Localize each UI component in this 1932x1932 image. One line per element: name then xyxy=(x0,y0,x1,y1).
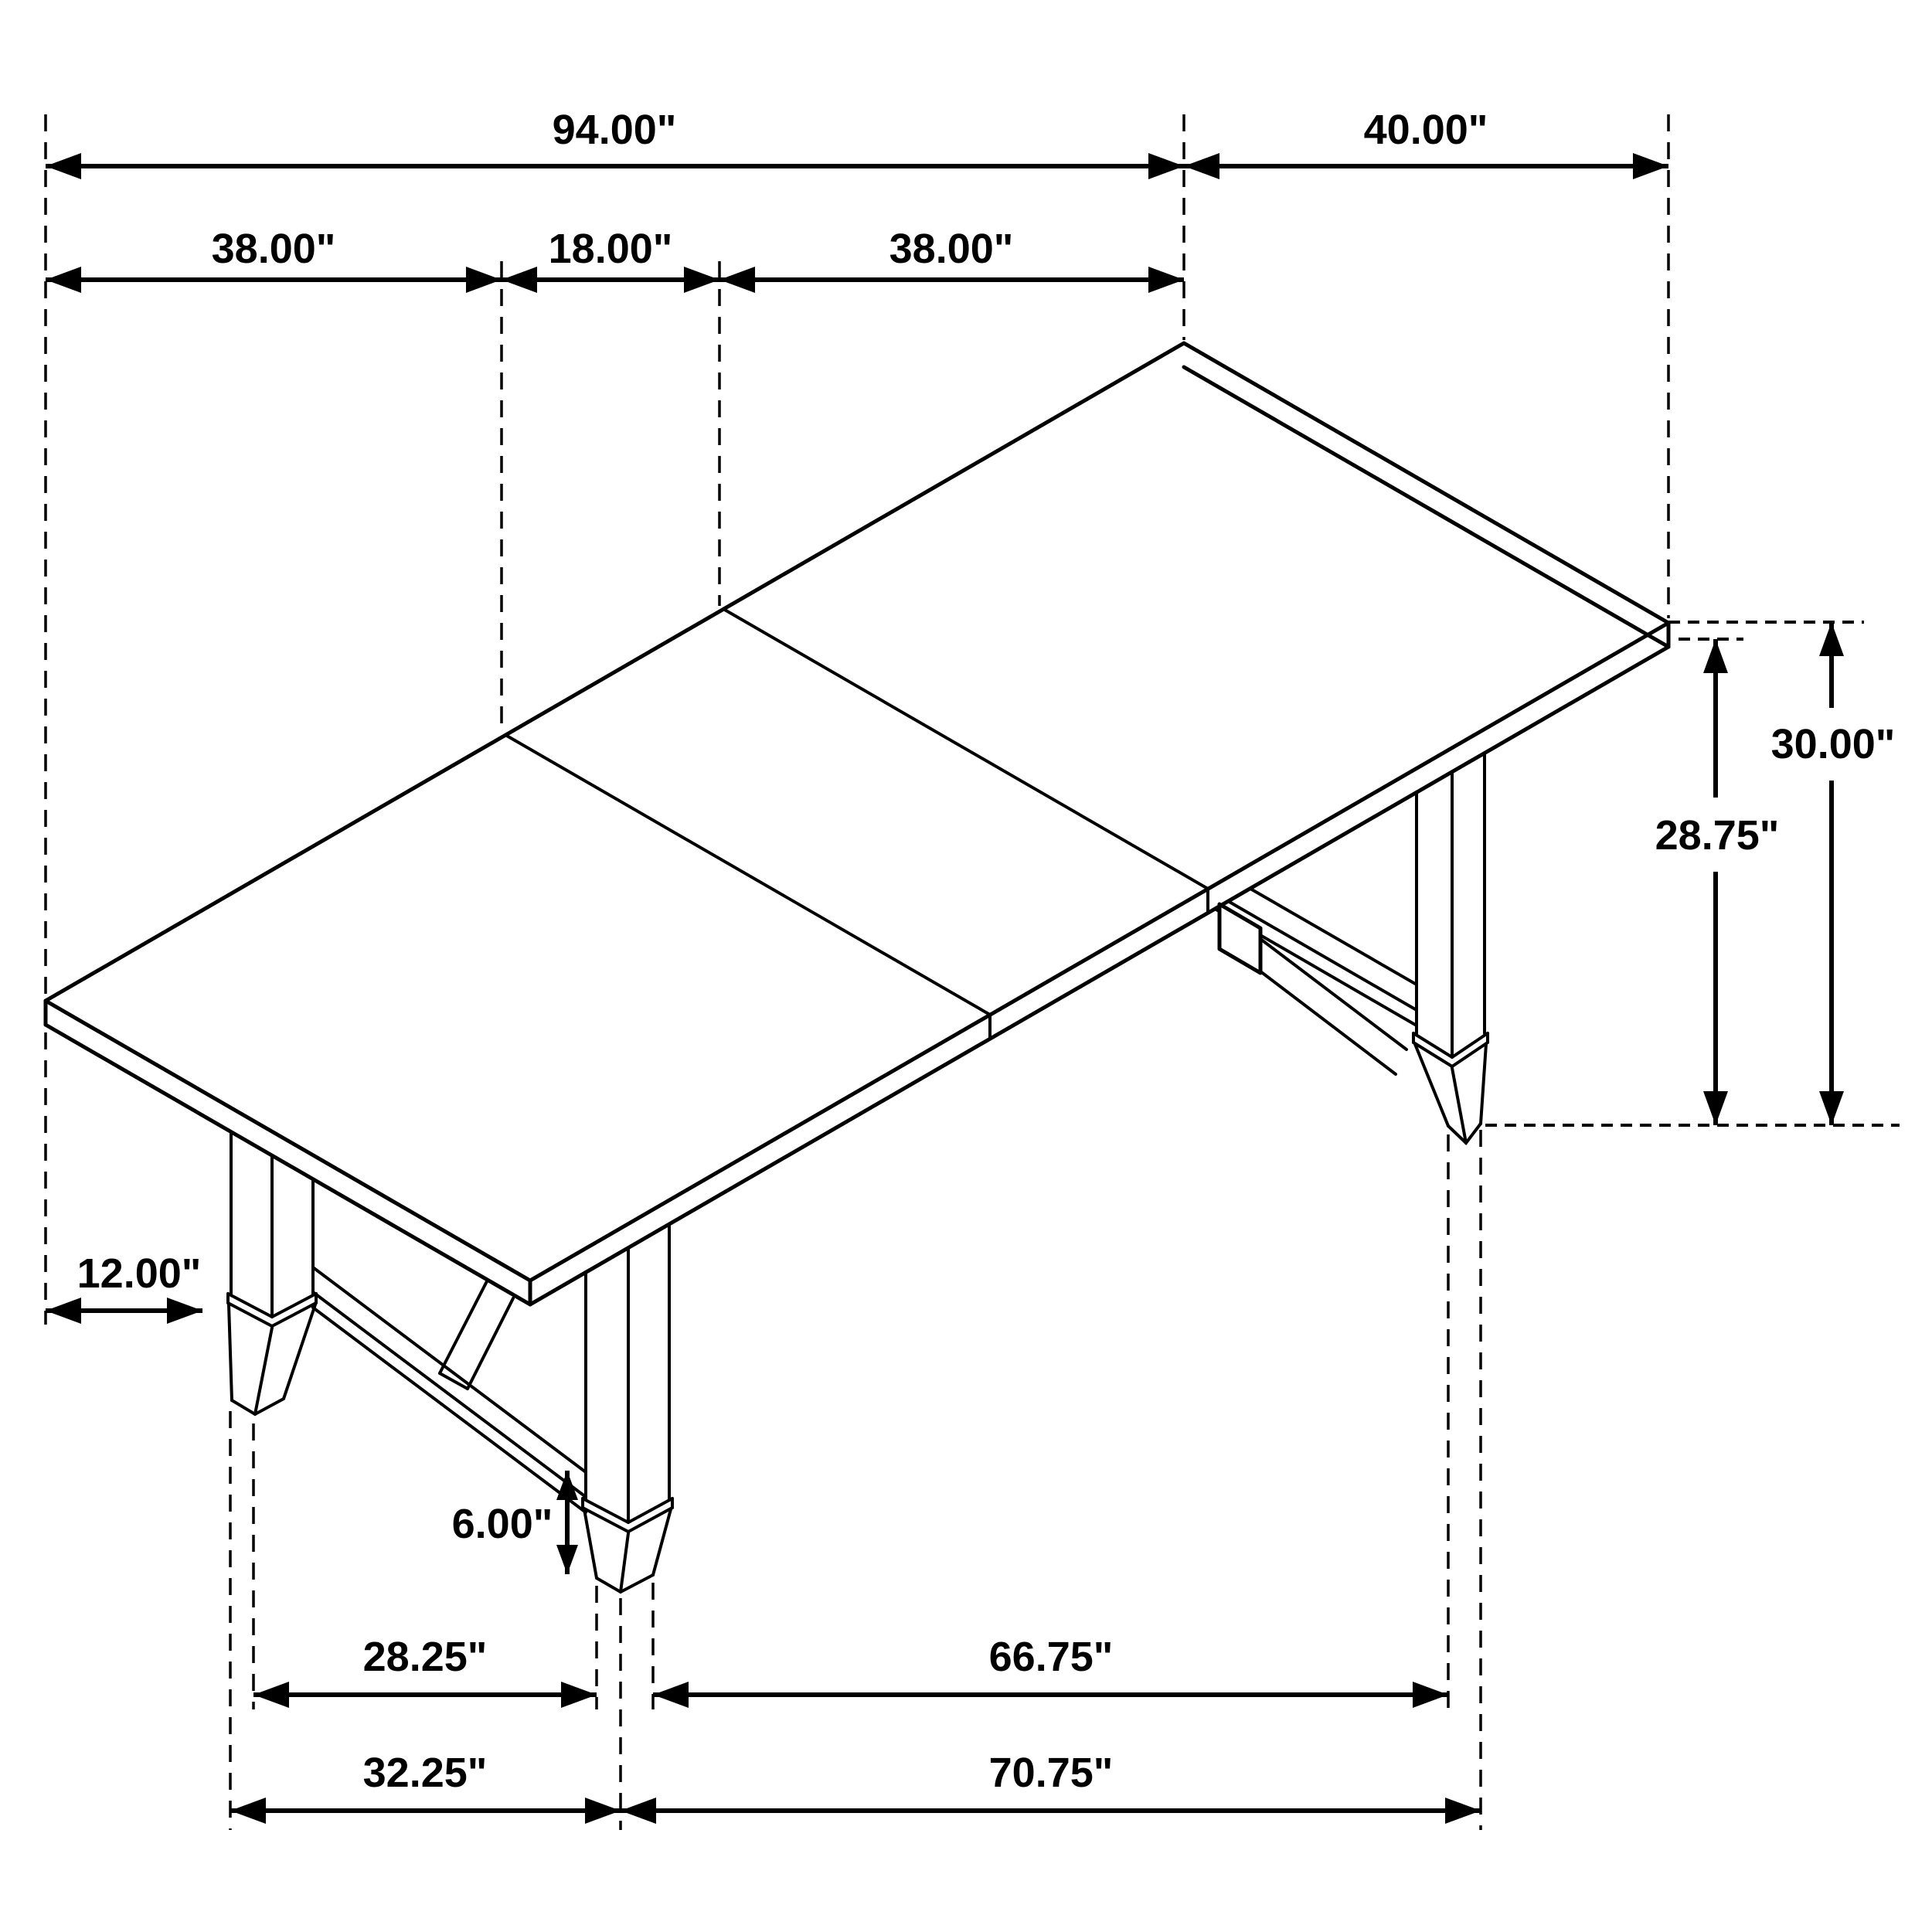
dim-label-right-panel: 38.00" xyxy=(889,226,1014,272)
dim-label-overall-height: 30.00" xyxy=(1771,721,1896,767)
dim-leaf: 18.00" xyxy=(502,226,719,293)
dim-label-overall-length: 94.00" xyxy=(553,107,677,153)
left-bottom-rail xyxy=(313,1267,586,1512)
dim-label-floor-to-underside: 28.75" xyxy=(1655,812,1780,859)
dim-leg-to-leg-span-outer: 70.75" xyxy=(621,1750,1481,1824)
dim-label-leg-to-leg-span: 66.75" xyxy=(989,1634,1114,1680)
back-right-leg xyxy=(1413,753,1488,1143)
drawing-canvas: 94.00" 40.00" 38.00" 18.00" 38.00" 30.00… xyxy=(0,0,1932,1932)
table-top-surface xyxy=(46,343,1668,1281)
back-left-leg xyxy=(583,1224,672,1592)
dim-floor-to-underside: 28.75" xyxy=(1655,639,1780,1125)
dim-overall-height: 30.00" xyxy=(1771,622,1896,1125)
dim-label-leg-spacing-outer: 32.25" xyxy=(363,1750,488,1796)
dim-table-width: 40.00" xyxy=(1184,107,1668,179)
dim-label-left-panel: 38.00" xyxy=(212,226,336,272)
dim-left-panel: 38.00" xyxy=(46,226,502,293)
dim-leg-spacing-inner: 28.25" xyxy=(253,1634,597,1708)
table-top xyxy=(46,343,1668,1304)
dim-leg-spacing-outer: 32.25" xyxy=(230,1750,621,1824)
dim-leg-to-leg-span: 66.75" xyxy=(653,1634,1448,1708)
dim-label-leaf: 18.00" xyxy=(549,226,673,272)
dim-label-foot-height: 6.00" xyxy=(452,1501,553,1547)
dim-label-leg-spacing-inner: 28.25" xyxy=(363,1634,488,1680)
table-dimension-drawing: 94.00" 40.00" 38.00" 18.00" 38.00" 30.00… xyxy=(0,0,1932,1932)
dim-overall-length: 94.00" xyxy=(46,107,1184,179)
dim-end-overhang: 12.00" xyxy=(46,1250,202,1324)
dim-foot-height: 6.00" xyxy=(452,1471,578,1574)
stretcher-end-block xyxy=(1219,904,1260,973)
dim-right-panel: 38.00" xyxy=(719,226,1184,293)
dim-label-leg-to-leg-span-outer: 70.75" xyxy=(989,1750,1114,1796)
dim-label-end-overhang: 12.00" xyxy=(77,1250,202,1297)
dim-label-table-width: 40.00" xyxy=(1364,107,1488,153)
